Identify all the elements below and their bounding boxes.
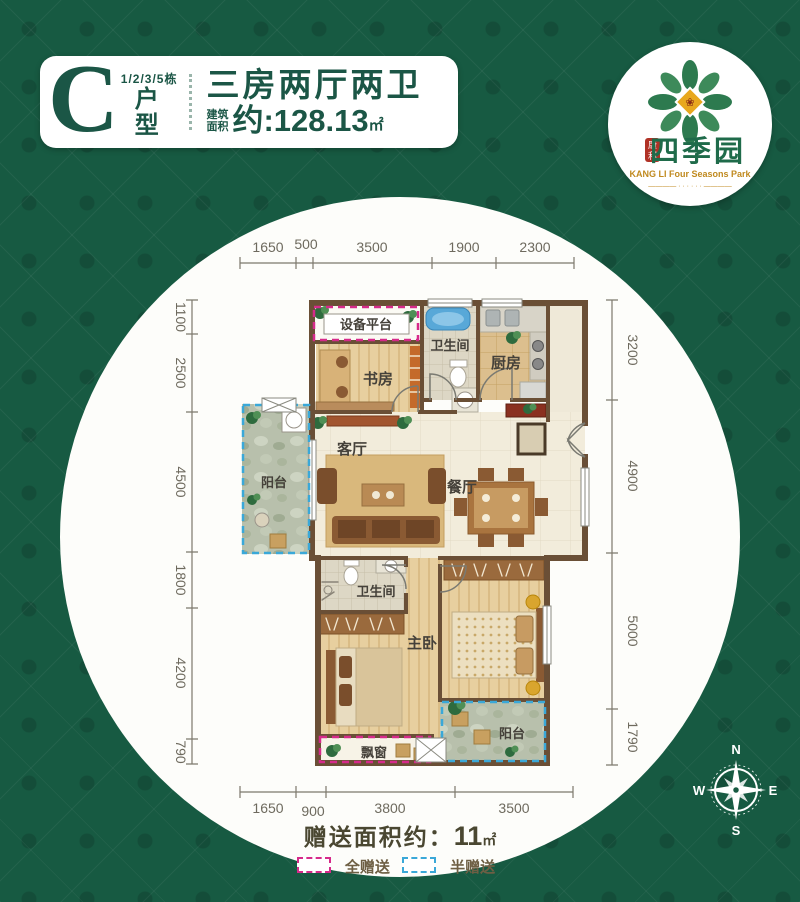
dim-left-5: 790: [173, 740, 189, 764]
dim-top-3: 1900: [448, 239, 479, 255]
room-label-living: 客厅: [336, 440, 367, 458]
dim-bottom-1: 900: [301, 803, 325, 819]
dim-bottom-0: 1650: [252, 800, 283, 816]
room-label-bath-top: 卫生间: [430, 338, 469, 353]
dim-top-2: 3500: [356, 239, 387, 255]
dim-right-0: 3200: [625, 334, 641, 365]
dim-left-1: 2500: [173, 357, 189, 388]
full-gift-swatch-icon: [297, 857, 331, 873]
gift-legend: 全赠送 半赠送: [0, 856, 800, 877]
half-gift-swatch-icon: [402, 857, 436, 873]
dim-left-2: 4500: [173, 466, 189, 497]
dim-right-1: 4900: [625, 460, 641, 491]
compass-e: E: [769, 783, 778, 798]
dim-bottom-2: 3800: [374, 800, 405, 816]
dim-right-3: 1790: [625, 721, 641, 752]
legend-full-gift: 全赠送: [345, 859, 390, 876]
room-label-bay-window: 飘窗: [361, 745, 387, 760]
dim-left-3: 1800: [173, 564, 189, 595]
dim-left-4: 4200: [173, 657, 189, 688]
gift-area-value: 11: [454, 821, 483, 851]
gift-area-line: 赠送面积约：11㎡: [0, 818, 800, 852]
compass-w: W: [693, 783, 706, 798]
room-label-balcony-bottom: 阳台: [499, 726, 525, 741]
legend-half-gift: 半赠送: [450, 859, 495, 876]
dim-top-1: 500: [294, 236, 318, 252]
dim-right-2: 5000: [625, 615, 641, 646]
room-label-bath-lower: 卫生间: [356, 584, 395, 599]
room-label-balcony-left: 阳台: [261, 475, 287, 490]
dim-top-0: 1650: [252, 239, 283, 255]
room-label-dining: 餐厅: [447, 478, 477, 496]
dim-top-4: 2300: [519, 239, 550, 255]
dim-left-0: 1100: [173, 302, 189, 332]
room-label-kitchen: 厨房: [491, 354, 521, 372]
room-label-study: 书房: [363, 370, 393, 388]
compass-n: N: [731, 742, 740, 757]
gift-area-label: 赠送面积约：: [304, 824, 454, 850]
dim-bottom-3: 3500: [498, 800, 529, 816]
floorplan-poster: C 1/2/3/5栋 户 型 三房两厅两卫 建筑 面积 约:128.13 ㎡: [0, 0, 800, 902]
floorplan-drawing: 设备平台 书房 卫生间 厨房 客厅 餐厅 阳台 卫生间 主卧 飘窗 阳台 165…: [0, 0, 800, 902]
gift-area-unit: ㎡: [482, 832, 496, 848]
room-label-master-bedroom: 主卧: [407, 634, 437, 652]
room-label-equipment-platform: 设备平台: [340, 317, 392, 332]
